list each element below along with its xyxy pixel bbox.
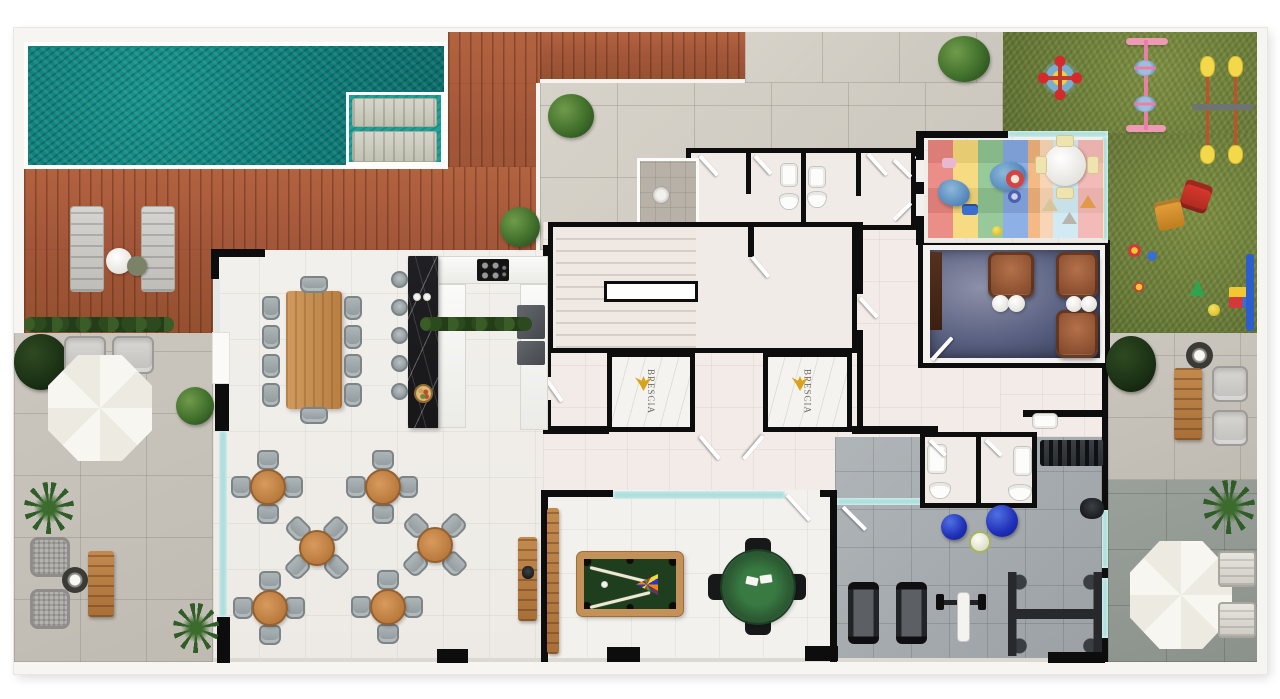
recliner [1056,310,1098,358]
bistro-chair [377,624,399,644]
vase [522,566,534,579]
door-gap [916,194,924,216]
bistro-chair [398,476,418,498]
kids-chair [1087,156,1099,174]
bistro-chair [372,504,394,524]
column [437,649,468,663]
wall [217,617,230,663]
balance-beam [1246,254,1254,331]
climber-cap [1200,145,1215,164]
poker-table [722,551,794,623]
sink [1032,413,1058,429]
bistro-chair [377,570,399,590]
bistro-chair [372,450,394,470]
bush [500,207,540,247]
hedge [420,317,532,331]
wall [211,249,265,257]
armchair [30,589,70,629]
palm-plant [1203,480,1255,534]
island-sink [423,293,431,301]
shower-head [652,186,670,204]
parasol [1130,541,1232,649]
toy-stool [1008,190,1021,203]
playing-cards [760,574,773,584]
kids-chair [1056,187,1074,199]
hedge [24,317,174,332]
building-edge [213,658,1108,662]
toy-ball [992,226,1002,236]
activity-table [1006,170,1024,188]
dumbbell-rack [1040,440,1104,466]
bush [548,94,594,138]
bistro-table [252,590,288,626]
bush [176,387,214,425]
sink [808,166,826,188]
bush [938,36,990,82]
bench-press-plate [936,594,944,610]
coffee-table [62,567,88,593]
oven [517,341,545,365]
toy-car [962,204,978,215]
bistro-chair [231,476,251,498]
palm-plant [173,603,219,653]
wall [211,249,219,279]
toy [1128,244,1141,257]
island-sink [413,293,421,301]
bistro-chair [257,504,279,524]
toy [1147,251,1157,261]
sink [1013,446,1032,476]
toy [1134,282,1144,292]
bar-stool [391,271,408,288]
bench [88,551,114,617]
treadmill [848,582,879,644]
wall [748,227,754,257]
wall [1102,365,1108,510]
side-table [1066,296,1082,312]
lounger [1218,602,1256,638]
elevator: BRESCIA [763,352,852,432]
side-table [1008,295,1025,312]
dining-chair [262,354,280,378]
column [1048,652,1105,663]
toy-motorcycle [1153,198,1185,232]
elevator: BRESCIA [607,352,695,432]
dining-chair [300,407,328,424]
wall [801,150,806,228]
sun-lounger [70,206,104,292]
bistro-table [299,530,335,566]
bistro-chair [233,597,253,619]
lounge-glass [219,431,227,617]
bistro-chair [285,597,305,619]
toy-ball [1208,304,1220,316]
dining-chair [262,325,280,349]
dining-chair [300,276,328,293]
sink [780,163,798,187]
treadmill [896,582,927,644]
wood-bench [547,508,559,654]
wall [856,150,861,196]
wall [543,426,609,434]
bench-press-pad [957,592,970,642]
gym-glass [837,498,922,505]
lounger [1218,551,1256,587]
side-table [1081,296,1097,312]
deck-edge [540,79,745,83]
flower-planter [1186,342,1213,369]
floorplan: BRESCIABRESCIA [0,0,1280,699]
wall [857,222,863,294]
kitchen-counter [438,284,466,428]
wall [916,131,924,245]
column [805,646,838,661]
swing-frame [1144,40,1148,130]
cable-machine [1008,572,1102,656]
bistro-chair [283,476,303,498]
cue-ball [601,581,608,588]
kids-chair [1035,156,1047,174]
parasol [48,355,152,461]
armchair [1212,410,1248,446]
bistro-table [370,589,406,625]
bar-stool [391,327,408,344]
wall [976,436,981,508]
gym-glass [1102,510,1108,568]
climber-bar [1192,104,1254,110]
wall [746,150,751,194]
wall [916,131,1008,138]
side-table [127,256,147,276]
dining-chair [344,325,362,349]
kids-table [1044,144,1086,186]
exercise-ball [941,514,967,540]
pizza-tray [414,384,433,403]
bistro-chair [403,596,423,618]
climber-cap [1228,56,1243,77]
dining-chair [344,296,362,320]
climber-pole [1234,76,1237,146]
climber-cap [1228,145,1243,164]
armchair [1212,366,1248,402]
merry-go-round [1038,56,1082,100]
climber-pole [1206,76,1209,146]
side-table [992,295,1009,312]
swing-seat [1134,60,1156,76]
bistro-table [365,469,401,505]
in-pool-lounger [352,98,437,127]
kids-chair [1056,135,1074,147]
bar-stool [391,299,408,316]
bush [1106,336,1156,392]
kettlebell [1080,498,1104,519]
door-gap [916,160,924,182]
wall [857,330,863,430]
bistro-chair [257,450,279,470]
bistro-chair [259,571,281,591]
dining-chair [344,354,362,378]
bar-stool [391,355,408,372]
sun-lounger [141,206,175,292]
bistro-chair [346,476,366,498]
bistro-chair [351,596,371,618]
dining-chair [262,383,280,407]
bar-stool [391,383,408,400]
exercise-ball [986,505,1018,537]
media-sideboard [930,252,942,330]
dining-table [286,291,342,409]
swing-seat [1134,96,1156,112]
wall [1102,568,1108,578]
dining-chair [262,296,280,320]
gym-glass [1102,578,1108,638]
pool-deck [540,32,745,83]
exercise-ball [969,531,991,553]
cooktop [477,259,509,281]
bistro-chair [259,625,281,645]
recliner [988,252,1034,298]
bistro-table [417,527,453,563]
palm-plant [24,482,74,534]
wall [215,383,229,431]
games-glass [613,491,785,499]
console-table [518,537,537,621]
toy [942,158,956,168]
climber-cap [1200,56,1215,77]
wall [541,490,613,497]
dining-chair [344,383,362,407]
wall-white [213,333,229,383]
bench [1174,368,1202,440]
recliner [1056,252,1098,298]
column [607,647,640,662]
in-pool-lounger [352,131,437,162]
stair-landing [604,281,698,302]
wall [830,490,837,662]
bench-press-plate [978,594,986,610]
bistro-table [250,469,286,505]
